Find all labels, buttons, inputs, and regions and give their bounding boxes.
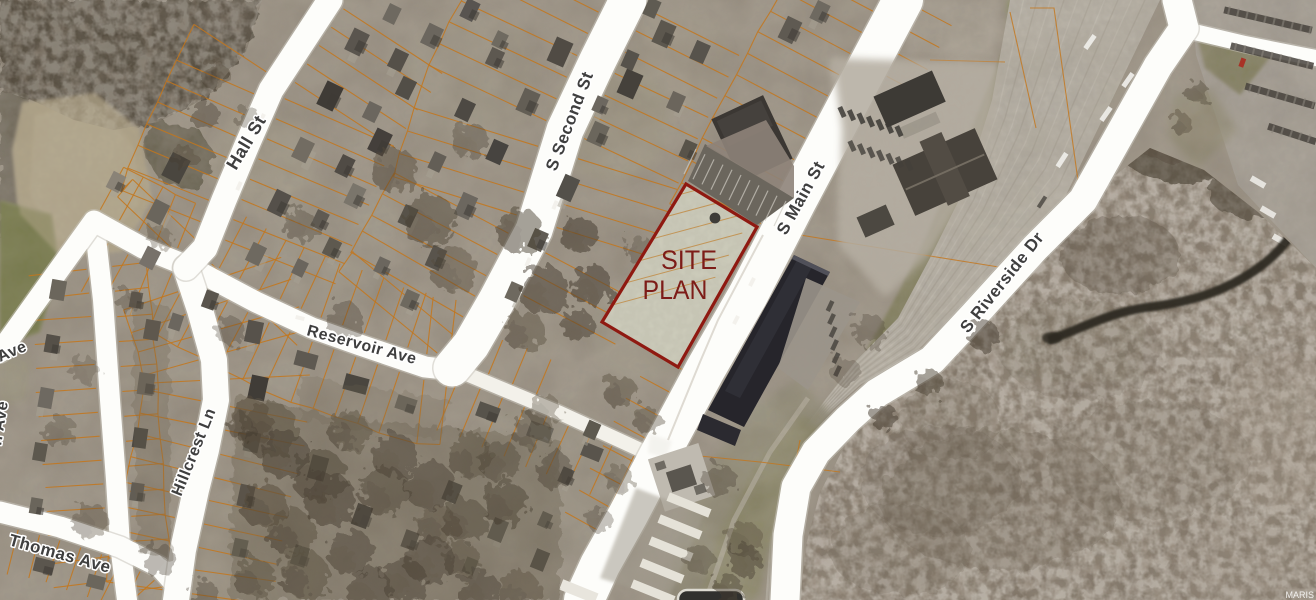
svg-text:SITE: SITE — [661, 245, 717, 275]
svg-text:PLAN: PLAN — [643, 275, 708, 305]
svg-text:MARIS: MARIS — [1285, 590, 1314, 600]
